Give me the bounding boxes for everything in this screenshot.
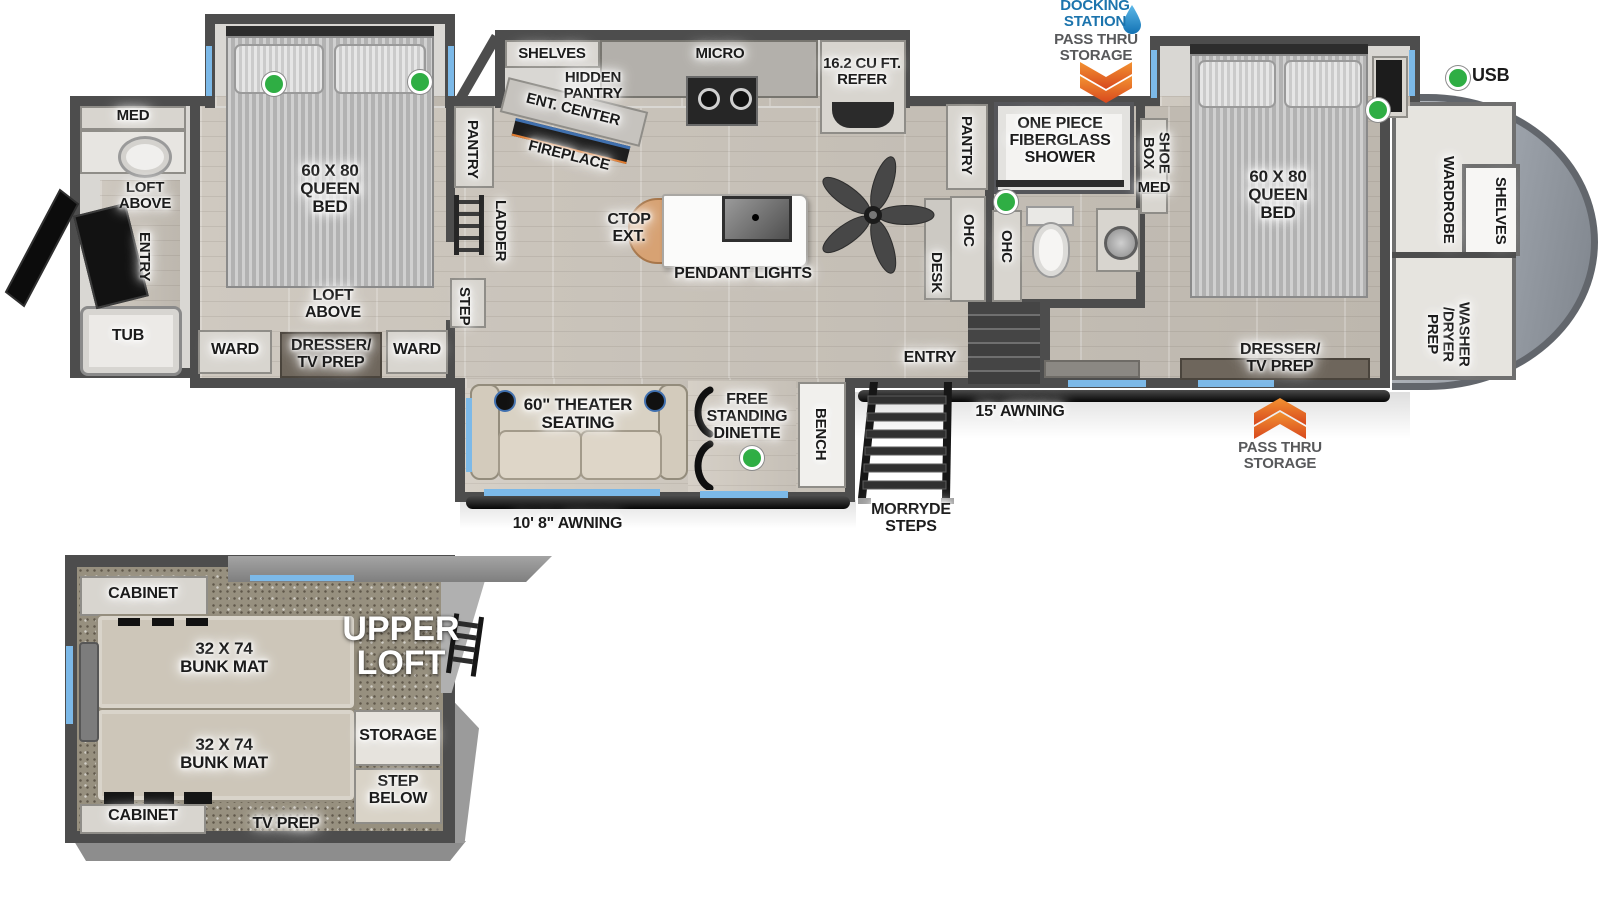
garage-window-bottom-1 bbox=[484, 489, 660, 496]
loft-roof-window bbox=[250, 575, 354, 581]
rear-entry-label: ENTRY bbox=[136, 222, 152, 292]
bottom-window-1 bbox=[1068, 380, 1146, 387]
bedroom2-ward-right-label: WARD bbox=[384, 342, 450, 359]
hidden-pantry-label: HIDDEN PANTRY bbox=[556, 70, 630, 102]
kitchen-shelves-label: SHELVES bbox=[512, 46, 592, 62]
loft-cabinet-top-vents bbox=[118, 618, 208, 626]
wardrobe-label: WARDROBE bbox=[1440, 152, 1456, 248]
ctop-ext-label: CTOP EXT. bbox=[600, 212, 658, 246]
front-shelves-label: SHELVES bbox=[1492, 172, 1508, 250]
shower-usb-dot bbox=[994, 190, 1018, 214]
interior-stairs bbox=[968, 302, 1040, 386]
loft-bunk-top-label: 32 X 74 BUNK MAT bbox=[174, 640, 274, 676]
rear-med-label: MED bbox=[98, 108, 168, 124]
bottom-window-2 bbox=[1198, 380, 1274, 387]
dinette-label: FREE STANDING DINETTE bbox=[702, 392, 792, 442]
garage-window-left bbox=[466, 398, 472, 472]
bedroom2-window-left bbox=[206, 46, 212, 96]
ohc-left-label: OHC bbox=[960, 210, 976, 250]
bedroom1-headboard bbox=[1190, 44, 1368, 54]
docking-station-label: DOCKING STATION bbox=[1056, 0, 1134, 30]
loft-storage-label: STORAGE bbox=[356, 728, 440, 745]
tub-label: TUB bbox=[102, 328, 154, 345]
bedroom2-ward-left-label: WARD bbox=[202, 342, 268, 359]
burner-right bbox=[730, 88, 752, 110]
midbath-med-label: MED bbox=[1128, 180, 1180, 196]
ceiling-fan-icon bbox=[808, 150, 938, 280]
hall-pantry-label: PANTRY bbox=[464, 116, 480, 182]
shoe-box-label: SHOE BOX bbox=[1140, 124, 1172, 182]
loft-bunk-bottom-label: 32 X 74 BUNK MAT bbox=[174, 736, 274, 772]
hall-step-label: STEP bbox=[456, 284, 472, 328]
morryde-steps-icon bbox=[856, 380, 966, 506]
usb-indicator-dot bbox=[1446, 66, 1470, 90]
loft-backrest bbox=[79, 642, 99, 742]
dinette-usb-dot bbox=[740, 446, 764, 470]
theater-label: 60" THEATER SEATING bbox=[508, 396, 648, 432]
main-entry-label: ENTRY bbox=[898, 350, 962, 367]
usb-label: USB bbox=[1472, 66, 1518, 85]
loft-cabinet-top-label: CABINET bbox=[100, 586, 186, 603]
main-awning-label: 15' AWNING bbox=[962, 404, 1078, 421]
desk-label: DESK bbox=[928, 246, 944, 298]
front-closet-divider bbox=[1392, 252, 1516, 258]
shower-door-track bbox=[996, 180, 1124, 187]
ohc-right-label: OHC bbox=[998, 226, 1014, 266]
washer-dryer-label: WASHER /DRYER PREP bbox=[1424, 292, 1471, 376]
bedroom2-loft-above-label: LOFT ABOVE bbox=[283, 288, 383, 322]
theater-cushion-left bbox=[498, 430, 582, 480]
hall-cabinet-strip bbox=[1044, 360, 1140, 378]
front-shelves-niche bbox=[1462, 164, 1520, 256]
hall-ladder-label: LADDER bbox=[492, 198, 508, 264]
floorplan-canvas: DOCKING STATION PASS THRU STORAGE WARDRO… bbox=[0, 0, 1600, 906]
rear-entry-door-icon bbox=[2, 188, 102, 318]
loft-tv-prep-label: TV PREP bbox=[246, 816, 326, 833]
rear-loft-above-label: LOFT ABOVE bbox=[112, 180, 178, 212]
bedroom1-usb-dot bbox=[1366, 98, 1390, 122]
midbath-sink bbox=[1104, 226, 1138, 260]
bedroom2-dresser-label: DRESSER/ TV PREP bbox=[291, 338, 371, 372]
refrigerator-door bbox=[832, 102, 894, 128]
loft-cabinet-bottom-label: CABINET bbox=[98, 808, 188, 825]
bedroom2-usb-dot-left bbox=[262, 72, 286, 96]
rear-sink bbox=[118, 136, 172, 178]
garage-awning-tube bbox=[466, 496, 850, 509]
shower-label: ONE PIECE FIBERGLASS SHOWER bbox=[1004, 116, 1116, 166]
garage-window-bottom-2 bbox=[700, 491, 788, 498]
theater-cushion-right bbox=[580, 430, 662, 480]
morryde-steps-label: MORRYDE STEPS bbox=[858, 502, 964, 536]
bedroom1-pillow-right bbox=[1284, 60, 1362, 108]
bedroom1-window-left bbox=[1151, 50, 1157, 98]
bench-label: BENCH bbox=[812, 406, 828, 462]
burner-left bbox=[698, 88, 720, 110]
bedroom1-bed-label: 60 X 80 QUEEN BED bbox=[1230, 168, 1326, 222]
bedroom1-window-right bbox=[1409, 50, 1415, 96]
loft-foot-slats bbox=[104, 792, 212, 804]
garage-awning-label: 10' 8" AWNING bbox=[505, 516, 630, 533]
bedroom2-window-right bbox=[448, 46, 454, 96]
micro-label: MICRO bbox=[688, 46, 752, 62]
chevron-down-icon bbox=[1078, 62, 1134, 104]
pendant-lights-label: PENDANT LIGHTS bbox=[668, 266, 818, 283]
pass-thru-top-label: PASS THRU STORAGE bbox=[1052, 32, 1140, 64]
bedroom1-dresser-label: DRESSER/ TV PREP bbox=[1240, 342, 1320, 376]
toilet-bowl bbox=[1032, 222, 1070, 278]
upper-loft-label: UPPER LOFT bbox=[342, 612, 460, 680]
island-faucet bbox=[752, 214, 759, 221]
loft-bottom-band bbox=[70, 841, 470, 861]
bedroom1-pillow-left bbox=[1198, 60, 1276, 108]
hall-ladder-icon bbox=[452, 194, 486, 256]
bedroom2-usb-dot-right bbox=[408, 70, 432, 94]
refer-label: 16.2 CU FT. REFER bbox=[820, 56, 904, 88]
bedroom2-headboard bbox=[226, 26, 434, 36]
loft-window-left bbox=[66, 646, 73, 724]
loft-step-below-label: STEP BELOW bbox=[366, 774, 430, 808]
living-pantry-label: PANTRY bbox=[958, 112, 974, 178]
bedroom2-bed-label: 60 X 80 QUEEN BED bbox=[282, 162, 378, 216]
pass-thru-bottom-label: PASS THRU STORAGE bbox=[1236, 440, 1324, 472]
chevron-up-icon bbox=[1252, 398, 1308, 440]
